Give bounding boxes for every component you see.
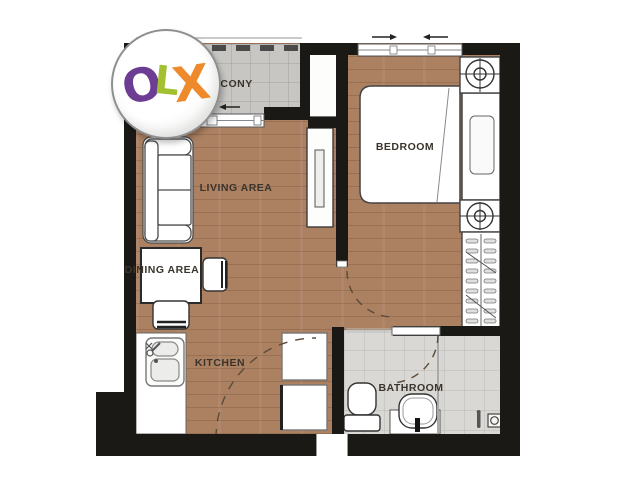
room-label-bedroom: BEDROOM bbox=[376, 141, 434, 153]
openings-layer bbox=[0, 0, 640, 480]
slide-arrow-icons bbox=[372, 34, 448, 40]
entrance-door-opening bbox=[316, 434, 348, 456]
bathroom-door bbox=[346, 327, 440, 335]
room-label-living: LIVING AREA bbox=[200, 182, 273, 194]
olx-watermark-logo: O L X bbox=[111, 29, 221, 139]
bathroom-door-leaf bbox=[392, 327, 440, 335]
wall-end-cap bbox=[337, 261, 347, 267]
floor-plan-image: BALCONY LIVING AREA BEDROOM DINING AREA … bbox=[0, 0, 640, 480]
room-label-kitchen: KITCHEN bbox=[195, 357, 245, 369]
room-label-bathroom: BATHROOM bbox=[378, 382, 443, 394]
room-label-dining: DINING AREA bbox=[125, 264, 200, 276]
bedroom-window bbox=[358, 34, 462, 56]
olx-letter-x: X bbox=[170, 58, 213, 111]
